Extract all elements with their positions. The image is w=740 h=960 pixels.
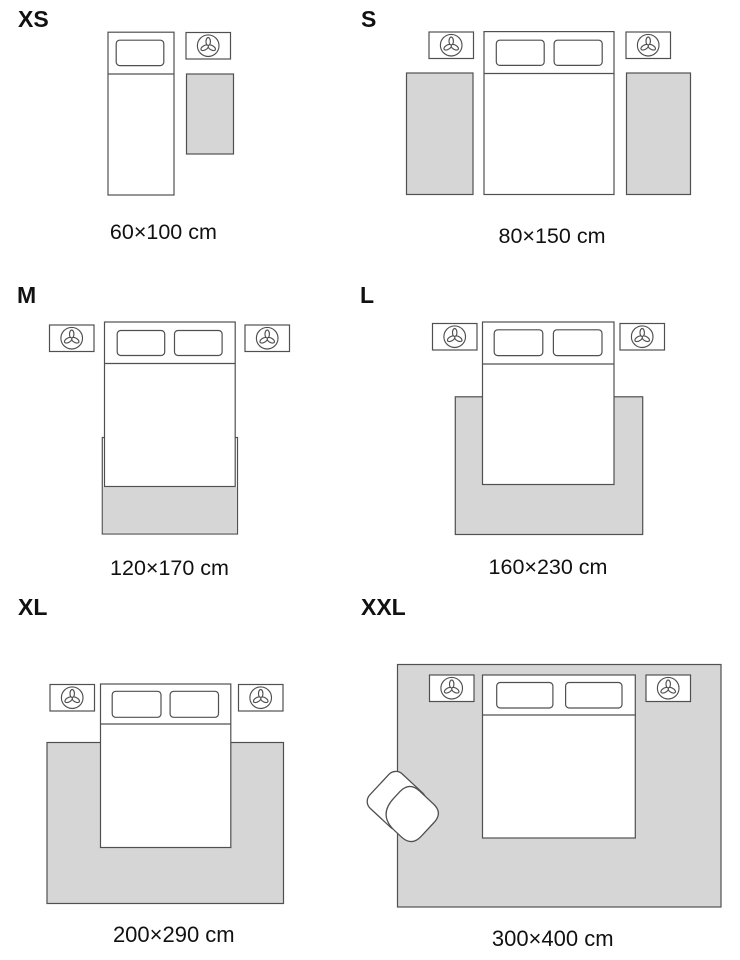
svg-text:200×290 cm: 200×290 cm [113, 922, 235, 947]
svg-text:M: M [17, 282, 36, 308]
svg-text:XS: XS [18, 6, 49, 32]
svg-text:60×100 cm: 60×100 cm [110, 220, 217, 244]
svg-text:160×230 cm: 160×230 cm [489, 555, 608, 579]
svg-text:XL: XL [18, 594, 47, 620]
svg-text:80×150 cm: 80×150 cm [499, 224, 606, 248]
svg-text:L: L [360, 282, 374, 308]
svg-text:300×400 cm: 300×400 cm [492, 926, 614, 951]
svg-text:XXL: XXL [361, 594, 406, 620]
svg-text:S: S [361, 6, 376, 32]
svg-text:120×170 cm: 120×170 cm [110, 556, 229, 580]
